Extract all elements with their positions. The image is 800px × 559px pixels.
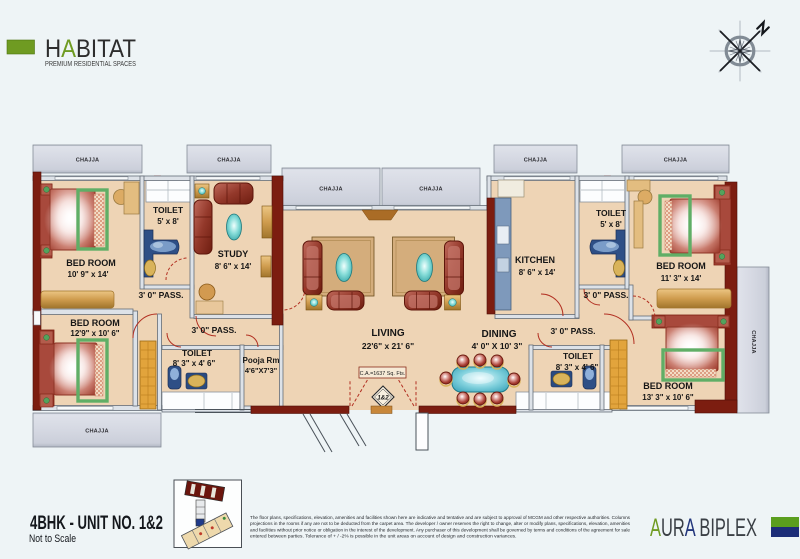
svg-text:3' 0" PASS.: 3' 0" PASS.: [583, 290, 628, 300]
svg-text:C.A.=1637 Sq. Fts.: C.A.=1637 Sq. Fts.: [360, 371, 406, 377]
svg-text:5' x 8': 5' x 8': [157, 217, 179, 226]
svg-text:4'6"X7'3": 4'6"X7'3": [245, 366, 278, 375]
svg-text:CHAJJA: CHAJJA: [217, 158, 241, 164]
svg-text:CHAJJA: CHAJJA: [524, 158, 548, 164]
svg-text:DINING: DINING: [482, 329, 517, 340]
svg-text:CHAJJA: CHAJJA: [76, 158, 100, 164]
svg-text:TOILET: TOILET: [153, 205, 184, 215]
svg-text:TOILET: TOILET: [182, 348, 213, 358]
svg-text:CHAJJA: CHAJJA: [419, 187, 443, 193]
svg-text:4BHK - UNIT NO. 1&2: 4BHK - UNIT NO. 1&2: [30, 513, 163, 534]
svg-text:3' 0" PASS.: 3' 0" PASS.: [138, 290, 183, 300]
svg-text:projections in the rooms if an: projections in the rooms if any are not …: [250, 521, 631, 527]
svg-text:8' 3" x 4' 6": 8' 3" x 4' 6": [173, 359, 216, 368]
svg-text:BED ROOM: BED ROOM: [643, 381, 693, 391]
svg-text:Not to Scale: Not to Scale: [29, 533, 76, 545]
svg-text:STUDY: STUDY: [218, 249, 249, 259]
svg-text:10' 9" x 14': 10' 9" x 14': [68, 270, 109, 279]
svg-text:and facilities without prior n: and facilities without prior notice or o…: [250, 527, 630, 533]
svg-text:4' 0" X 10' 3": 4' 0" X 10' 3": [472, 341, 523, 351]
svg-text:CHAJJA: CHAJJA: [319, 187, 343, 193]
svg-text:11' 3" x 14': 11' 3" x 14': [661, 274, 702, 283]
svg-text:BED ROOM: BED ROOM: [70, 318, 120, 328]
svg-text:HABITAT: HABITAT: [45, 35, 136, 63]
svg-text:8' 3" x 4' 6": 8' 3" x 4' 6": [556, 363, 599, 372]
svg-text:Pooja Rm: Pooja Rm: [243, 356, 280, 365]
svg-text:8' 6" x 14': 8' 6" x 14': [519, 268, 556, 277]
svg-text:8' 6" x 14': 8' 6" x 14': [215, 262, 252, 271]
svg-text:3' 0" PASS.: 3' 0" PASS.: [550, 326, 595, 336]
svg-text:CHAJJA: CHAJJA: [85, 429, 109, 435]
svg-text:CHAJJA: CHAJJA: [664, 158, 688, 164]
svg-text:5' x 8': 5' x 8': [600, 220, 622, 229]
svg-text:3' 0" PASS.: 3' 0" PASS.: [191, 325, 236, 335]
svg-text:AURA BIPLEX: AURA BIPLEX: [650, 514, 757, 542]
svg-text:KITCHEN: KITCHEN: [515, 255, 555, 265]
svg-text:LIVING: LIVING: [371, 328, 405, 339]
svg-text:TOILET: TOILET: [563, 351, 594, 361]
svg-text:entered between parties. Tol: entered between parties. Tolerance of + …: [250, 534, 516, 540]
svg-text:13' 3" x 10' 6": 13' 3" x 10' 6": [642, 393, 694, 402]
svg-text:PREMIUM RESIDENTIAL SPACES: PREMIUM RESIDENTIAL SPACES: [45, 61, 136, 68]
svg-text:12'9" x 10' 6": 12'9" x 10' 6": [70, 329, 119, 338]
svg-text:CHAJJA: CHAJJA: [750, 330, 756, 354]
svg-text:TOILET: TOILET: [596, 208, 627, 218]
svg-text:BED ROOM: BED ROOM: [66, 258, 116, 268]
svg-text:BED ROOM: BED ROOM: [656, 261, 706, 271]
svg-text:22'6" x 21' 6": 22'6" x 21' 6": [362, 341, 414, 351]
svg-text:1&2: 1&2: [377, 395, 389, 402]
svg-text:The floor plans, specification: The floor plans, specifications, elevati…: [250, 515, 631, 521]
